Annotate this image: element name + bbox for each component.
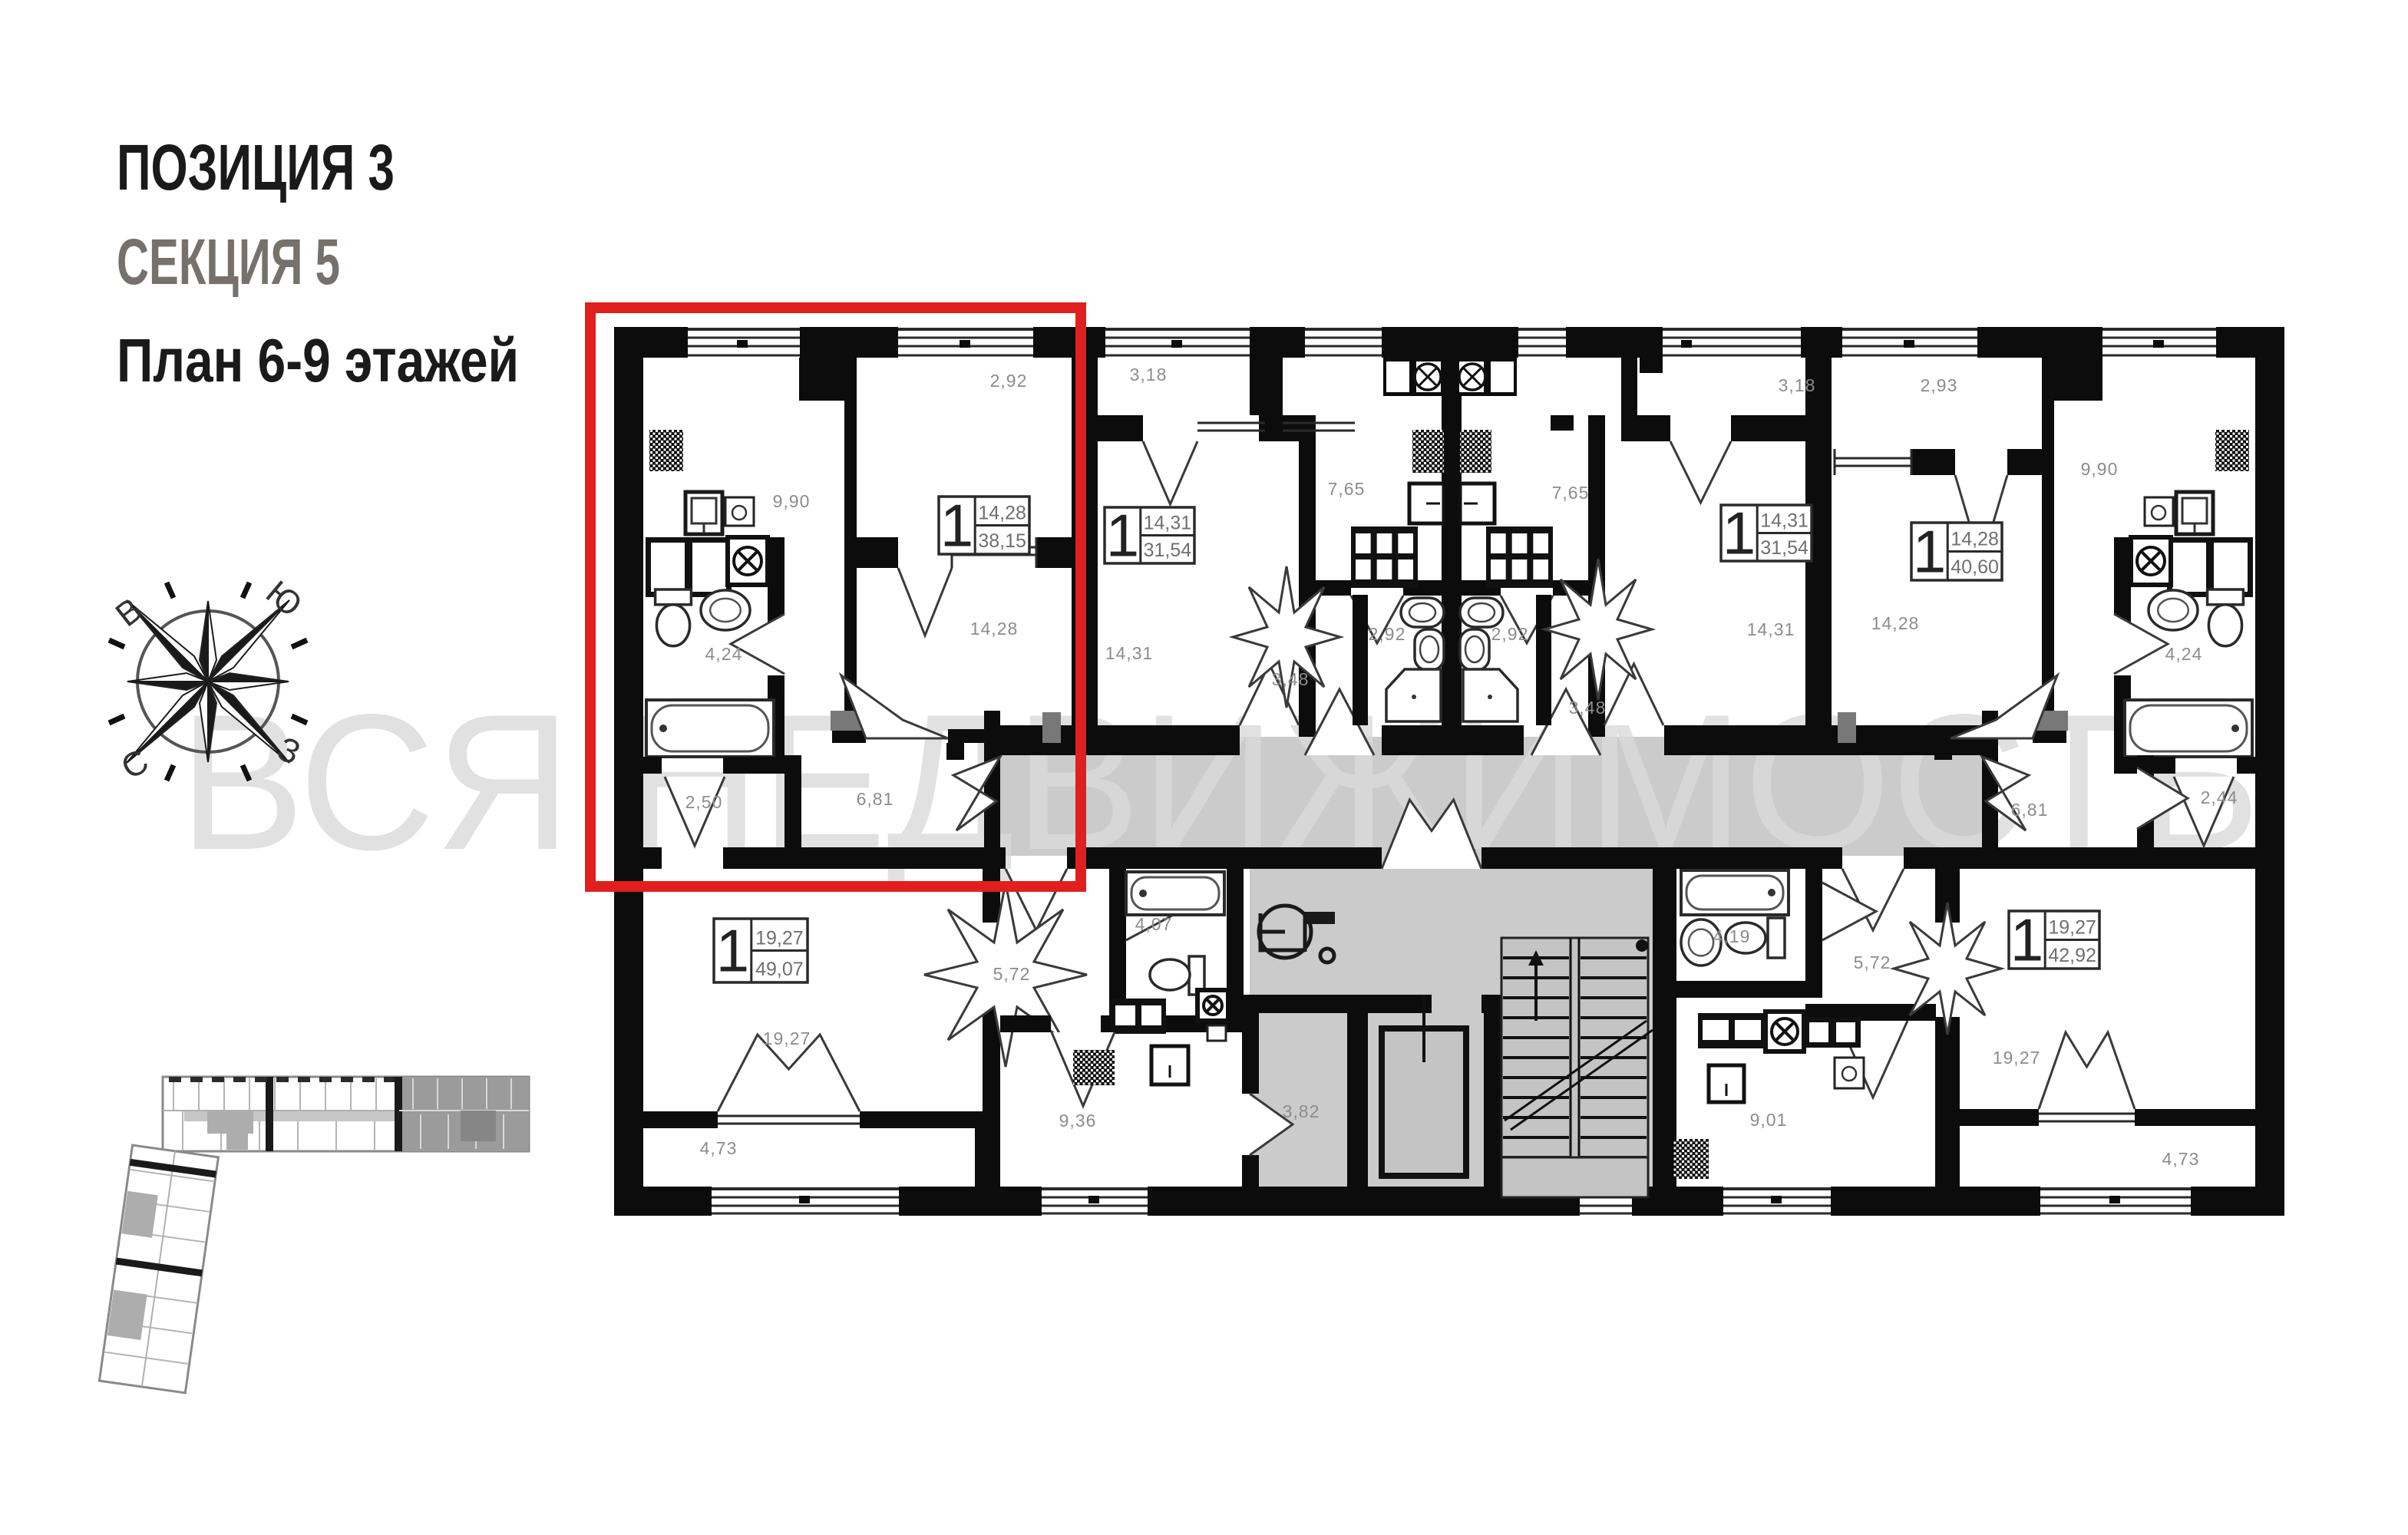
svg-text:4,07: 4,07: [1135, 914, 1173, 934]
svg-text:40,60: 40,60: [1951, 556, 1999, 578]
svg-text:5,72: 5,72: [993, 964, 1031, 984]
svg-text:14,28: 14,28: [1951, 529, 1999, 550]
svg-text:19,27: 19,27: [755, 928, 804, 949]
svg-text:3,48: 3,48: [1569, 698, 1607, 718]
svg-text:14,28: 14,28: [1871, 613, 1920, 633]
svg-text:7,65: 7,65: [1328, 479, 1366, 499]
svg-text:СЕКЦИЯ 5: СЕКЦИЯ 5: [117, 226, 340, 298]
svg-text:2,92: 2,92: [1491, 624, 1529, 644]
svg-text:2,44: 2,44: [2201, 787, 2238, 807]
svg-text:49,07: 49,07: [755, 959, 804, 980]
svg-text:19,27: 19,27: [1993, 1048, 2041, 1068]
svg-text:3,18: 3,18: [1130, 365, 1168, 385]
svg-text:4,24: 4,24: [2165, 644, 2203, 664]
svg-text:6,81: 6,81: [857, 789, 894, 809]
svg-text:14,31: 14,31: [1144, 513, 1192, 534]
svg-text:3,18: 3,18: [1779, 375, 1816, 395]
svg-text:2,92: 2,92: [1369, 624, 1406, 644]
svg-text:19,27: 19,27: [763, 1028, 811, 1048]
svg-text:14,28: 14,28: [970, 619, 1019, 639]
svg-text:4,73: 4,73: [2162, 1149, 2200, 1169]
svg-text:1: 1: [716, 917, 749, 985]
svg-text:6,81: 6,81: [2011, 800, 2049, 820]
svg-text:42,92: 42,92: [2048, 945, 2096, 966]
svg-text:4,24: 4,24: [705, 644, 743, 664]
svg-text:4,19: 4,19: [1713, 926, 1751, 946]
svg-text:19,27: 19,27: [2048, 917, 2096, 939]
svg-text:9,90: 9,90: [773, 491, 811, 511]
svg-text:ПОЗИЦИЯ 3: ПОЗИЦИЯ 3: [117, 131, 395, 203]
svg-text:14,31: 14,31: [1760, 510, 1808, 532]
svg-text:5,72: 5,72: [1854, 952, 1891, 972]
svg-text:1: 1: [1106, 502, 1139, 569]
svg-text:План 6-9 этажей: План 6-9 этажей: [117, 326, 519, 394]
svg-text:14,31: 14,31: [1105, 643, 1154, 663]
svg-text:2,93: 2,93: [1921, 375, 1958, 395]
svg-text:1: 1: [940, 492, 973, 560]
svg-text:31,54: 31,54: [1144, 540, 1192, 561]
svg-text:14,28: 14,28: [978, 503, 1026, 524]
svg-text:9,01: 9,01: [1750, 1110, 1788, 1130]
svg-text:1: 1: [1723, 500, 1756, 567]
svg-text:2,50: 2,50: [685, 792, 723, 812]
svg-text:31,54: 31,54: [1760, 537, 1808, 559]
svg-text:9,36: 9,36: [1059, 1111, 1097, 1131]
svg-text:3,82: 3,82: [1283, 1101, 1320, 1121]
svg-text:3,48: 3,48: [1272, 669, 1310, 689]
svg-text:14,31: 14,31: [1747, 619, 1795, 639]
svg-text:7,65: 7,65: [1552, 483, 1590, 503]
svg-text:1: 1: [2010, 906, 2043, 974]
svg-text:2,92: 2,92: [990, 371, 1028, 391]
svg-text:1: 1: [1913, 518, 1946, 586]
svg-text:38,15: 38,15: [978, 530, 1026, 552]
svg-text:9,90: 9,90: [2081, 459, 2119, 479]
svg-text:4,73: 4,73: [700, 1138, 738, 1158]
